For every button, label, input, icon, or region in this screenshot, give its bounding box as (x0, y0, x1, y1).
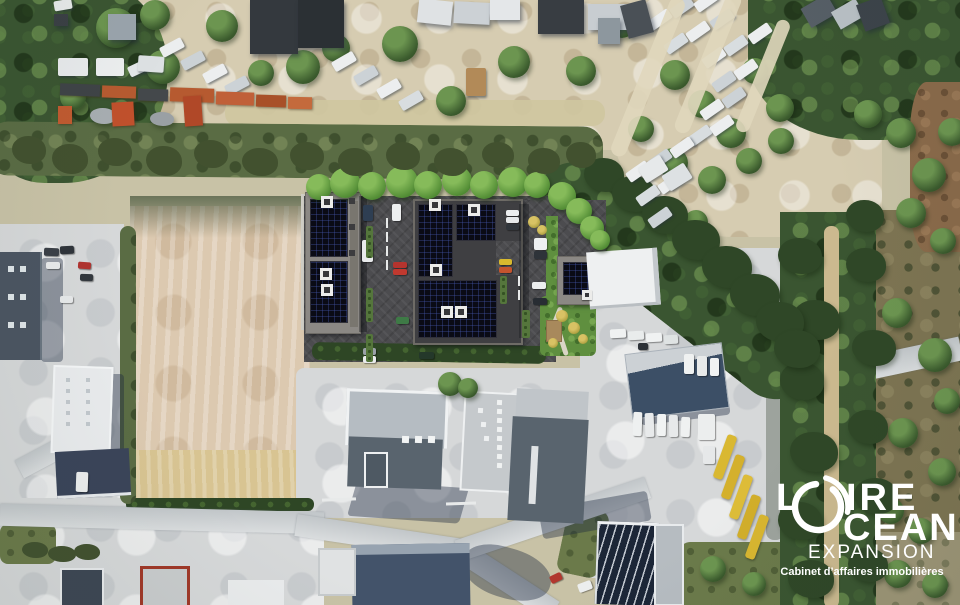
vehicle (669, 415, 678, 437)
vehicle (78, 262, 91, 270)
tree (498, 46, 530, 78)
hedge-clump (434, 148, 468, 176)
tree-clump (150, 112, 174, 126)
roof-dot (415, 436, 422, 443)
building-roof (108, 14, 136, 40)
aerial-photo-scene: L IRE CEAN EXPANSION Cabinet d’affaires … (0, 0, 960, 605)
tree (886, 118, 916, 148)
hedge-clump (242, 148, 278, 176)
roof-dot (497, 409, 502, 414)
hedge-clump (98, 138, 132, 166)
shrub (568, 322, 580, 334)
vehicle (710, 358, 719, 376)
roof-hatch (320, 268, 332, 280)
roof-dot (402, 436, 409, 443)
vehicle (506, 224, 519, 230)
roof-hatch (321, 284, 333, 296)
hedge-clump (22, 542, 48, 558)
tree (882, 298, 912, 328)
tree (698, 166, 726, 194)
logo: L IRE CEAN EXPANSION Cabinet d’affaires … (764, 466, 960, 592)
vehicle (506, 217, 519, 223)
logo-tagline: Cabinet d’affaires immobilières (764, 567, 960, 578)
vehicle (60, 296, 73, 303)
road-marking (322, 497, 356, 501)
tree (248, 60, 274, 86)
shrub (548, 338, 558, 348)
vehicle (549, 572, 563, 584)
tree (660, 60, 690, 90)
tree-clump (852, 330, 896, 366)
logo-word-expansion: EXPANSION (808, 543, 935, 562)
vehicle (610, 329, 626, 339)
roof-dot (86, 389, 90, 393)
roof-dot (66, 411, 70, 415)
roof-dot (349, 198, 355, 204)
roof-dot (66, 400, 70, 404)
vehicle (44, 248, 59, 257)
roof-hatch (468, 204, 480, 216)
caravan-roof (466, 68, 486, 96)
site-tree (414, 171, 442, 199)
hedge-clump (52, 144, 88, 174)
road-marking (386, 260, 388, 270)
roof-dot (86, 400, 90, 404)
vehicle (684, 354, 694, 374)
hedge-clump (74, 544, 100, 560)
hedge-clump (146, 146, 182, 176)
tree (930, 228, 956, 254)
vehicle (80, 274, 93, 281)
vehicle (577, 580, 593, 593)
hedge-clump (194, 140, 228, 168)
tree (766, 94, 794, 122)
parking-verge (500, 276, 507, 304)
tree (912, 158, 946, 192)
building-roof (298, 0, 344, 48)
hedge-clump (566, 142, 596, 168)
caravan-roof (353, 65, 379, 87)
road-marking (518, 290, 520, 300)
roof-dot (20, 266, 26, 272)
caravan-roof (96, 58, 124, 76)
tree-clump (778, 238, 822, 274)
tree (382, 26, 418, 62)
roof-dot (8, 322, 14, 328)
building-roof (417, 0, 453, 26)
roof-hatch (430, 264, 442, 276)
roof-dot (497, 445, 502, 450)
road-marking (518, 276, 520, 286)
vehicle (534, 251, 547, 259)
caravan-roof (685, 20, 711, 43)
vehicle (681, 417, 691, 437)
road-marking (446, 501, 476, 505)
building-roof (54, 14, 68, 26)
shipping-container (138, 88, 168, 101)
shipping-container (183, 95, 203, 126)
vehicle (697, 356, 707, 376)
vehicle (506, 210, 519, 216)
shrub (578, 334, 588, 344)
tree (286, 50, 320, 84)
caravan-roof (398, 90, 424, 112)
vehicle (664, 335, 678, 345)
roof-dot (481, 422, 486, 427)
roof-dot (86, 411, 90, 415)
roof-hatch (429, 199, 441, 211)
shipping-container (216, 91, 254, 105)
tree-clump (774, 330, 820, 368)
building-roof (856, 0, 890, 32)
shipping-container (102, 85, 136, 98)
caravan-roof (711, 70, 737, 93)
caravan-roof (376, 78, 402, 100)
building-roof (250, 0, 298, 54)
building-roof (598, 18, 620, 44)
shrub (537, 225, 547, 235)
roof-dot (497, 418, 502, 423)
vehicle (638, 343, 648, 350)
tree (736, 148, 762, 174)
vehicle (46, 262, 60, 269)
vehicle (703, 446, 715, 464)
tree (458, 378, 478, 398)
hedge-clump (482, 142, 514, 168)
tree (206, 10, 238, 42)
roof-dot (349, 250, 355, 256)
parking-verge (366, 288, 373, 322)
hedge-clump (290, 142, 324, 170)
roof-dot (86, 422, 90, 426)
vehicle (532, 282, 546, 289)
hedge-clump (12, 136, 46, 164)
caravan-roof (693, 0, 719, 13)
tree (918, 338, 952, 372)
caravan-roof (58, 58, 88, 76)
roof-dot (497, 436, 502, 441)
caravan-roof (53, 0, 72, 11)
tree (140, 0, 170, 30)
caravan-roof (180, 50, 206, 71)
vehicle (628, 331, 644, 341)
roof-dot (66, 389, 70, 393)
vehicle (534, 238, 547, 250)
tree (854, 100, 882, 128)
tree (566, 56, 596, 86)
tree (934, 388, 960, 414)
shipping-container (60, 83, 100, 96)
site-tree (524, 172, 550, 198)
road-marking (386, 246, 388, 256)
hedge-clump (48, 546, 76, 562)
tree-clump (848, 410, 888, 444)
tree-clump (846, 200, 884, 232)
roof-dot (8, 266, 14, 272)
tree-clump (846, 248, 886, 282)
parking-verge (366, 334, 373, 362)
tree (896, 198, 926, 228)
road-marking (386, 218, 388, 228)
roof-hatch (321, 196, 333, 208)
road-marking (386, 232, 388, 242)
hedge-clump (386, 142, 420, 170)
vehicle (645, 413, 655, 437)
roof-dot (497, 400, 502, 405)
hedge-clump (338, 148, 372, 176)
caravan-roof (137, 55, 164, 73)
roof-dot (497, 427, 502, 432)
tree (938, 118, 960, 146)
roof-hatch (582, 290, 592, 300)
parking-verge (366, 226, 373, 258)
tree (768, 128, 794, 154)
site-tree (358, 172, 386, 200)
vehicle (363, 205, 373, 221)
roof-dot (20, 322, 26, 328)
vehicle (633, 412, 643, 436)
roof-dot (20, 294, 26, 300)
roof-dot (497, 454, 502, 459)
vehicle (396, 317, 409, 324)
site-tree (470, 171, 498, 199)
roof-dot (8, 294, 14, 300)
building-roof (490, 0, 520, 20)
tree (888, 418, 918, 448)
roof-dot (497, 463, 502, 468)
vehicle (698, 414, 715, 440)
site-tree (590, 230, 610, 250)
tree (436, 86, 466, 116)
vehicle (393, 269, 407, 275)
vehicle (657, 414, 666, 436)
vehicle (76, 472, 89, 492)
shrub (556, 310, 568, 322)
shipping-container (256, 94, 286, 107)
roof-dot (86, 378, 90, 382)
caravan-roof (202, 63, 228, 84)
roof-dot (484, 436, 489, 441)
vehicle (499, 259, 512, 265)
shipping-container (111, 101, 134, 126)
building-roof (453, 1, 490, 25)
vehicle (646, 333, 662, 343)
roof-dot (478, 408, 483, 413)
vehicle (392, 204, 401, 221)
roof-hatch (441, 306, 453, 318)
roof-dot (428, 436, 435, 443)
hedge-clump (528, 148, 560, 174)
roof-dot (349, 224, 355, 230)
roof-dot (66, 422, 70, 426)
shipping-container (58, 106, 72, 124)
parking-verge (522, 310, 530, 338)
vehicle (393, 262, 407, 268)
shipping-container (288, 97, 312, 109)
vehicle (419, 352, 434, 359)
tree (700, 556, 726, 582)
vehicle (533, 298, 547, 305)
vehicle (60, 246, 74, 255)
vehicle (499, 267, 512, 273)
logo-ring-icon (785, 474, 851, 540)
roof-hatch (455, 306, 467, 318)
roof-dot (66, 378, 70, 382)
building-roof (538, 0, 584, 34)
tree (742, 572, 766, 596)
